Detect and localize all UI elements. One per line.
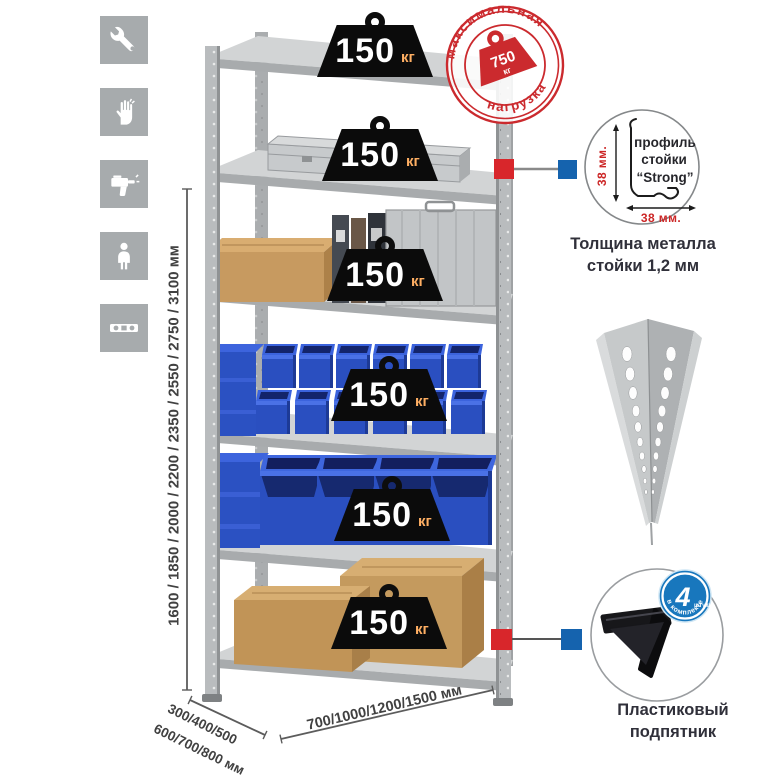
connector-blue-square-top [558, 160, 577, 179]
quantity-badge: 4 штуки в комплекте [659, 570, 712, 622]
foot-caption-line2: подпятник [587, 722, 759, 744]
foot-caption-line1: Пластиковый [587, 700, 759, 722]
connector-blue-square-bottom [561, 629, 582, 650]
connector-red-square-bottom [491, 629, 512, 650]
load-capacity-badge: 150кг [317, 12, 433, 77]
profile-label-3: “Strong” [637, 170, 694, 185]
profile-caption: Толщина металла стойки 1,2 мм [557, 234, 729, 278]
height-dimension-label: 1600 / 1850 / 2000 / 2200 / 2350 / 2550 … [166, 196, 183, 676]
foot-caption: Пластиковый подпятник [587, 700, 759, 744]
load-capacity-badge: 150кг [322, 116, 438, 181]
load-capacity-badge: 150кг [331, 584, 447, 649]
profile-caption-line1: Толщина металла [557, 234, 729, 256]
load-capacity-badge: 150кг [331, 356, 447, 421]
connector-red-square-top [494, 159, 514, 179]
weight-value: 150 [335, 34, 395, 68]
level-icon [100, 304, 148, 352]
weight-unit: кг [418, 514, 432, 529]
load-capacity-badge: 150кг [334, 476, 450, 541]
profile-dim-vertical: 38 мм. [595, 146, 609, 186]
post-profile-detail: 38 мм. 38 мм. профиль стойки “Strong” [585, 110, 699, 225]
cardboard-box-shelf3 [206, 238, 340, 302]
weight-unit: кг [411, 274, 425, 289]
shelving-infographic: максимальная нагрузка 750 кг 38 мм. 38 м… [0, 0, 765, 765]
weight-unit: кг [415, 622, 429, 637]
max-load-stamp: максимальная нагрузка 750 кг [428, 0, 579, 139]
drill-icon [100, 160, 148, 208]
weight-value: 150 [352, 498, 412, 532]
load-capacity-badge: 150кг [327, 236, 443, 301]
plastic-foot-detail: 4 штуки в комплекте [591, 569, 723, 701]
person-icon [100, 232, 148, 280]
corner-post-image [596, 319, 702, 545]
weight-unit: кг [415, 394, 429, 409]
weight-value: 150 [349, 378, 409, 412]
feature-icon-column [100, 16, 148, 352]
weight-unit: кг [406, 154, 420, 169]
rack-front-right-post [493, 58, 513, 706]
profile-caption-line2: стойки 1,2 мм [557, 256, 729, 278]
wrench-icon [100, 16, 148, 64]
profile-label-1: профиль [634, 135, 696, 150]
profile-label-2: стойки [641, 152, 687, 167]
weight-value: 150 [349, 606, 409, 640]
weight-value: 150 [345, 258, 405, 292]
profile-dim-horizontal: 38 мм. [641, 211, 681, 225]
rack-front-left-post [202, 46, 222, 702]
weight-unit: кг [401, 50, 415, 65]
gloves-icon [100, 88, 148, 136]
weight-value: 150 [340, 138, 400, 172]
